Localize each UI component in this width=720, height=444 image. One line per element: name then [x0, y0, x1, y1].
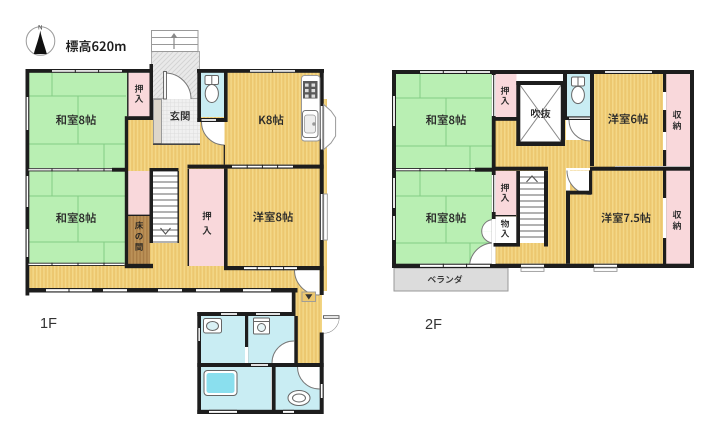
svg-text:1F: 1F — [40, 316, 57, 332]
svg-text:2F: 2F — [425, 317, 442, 333]
